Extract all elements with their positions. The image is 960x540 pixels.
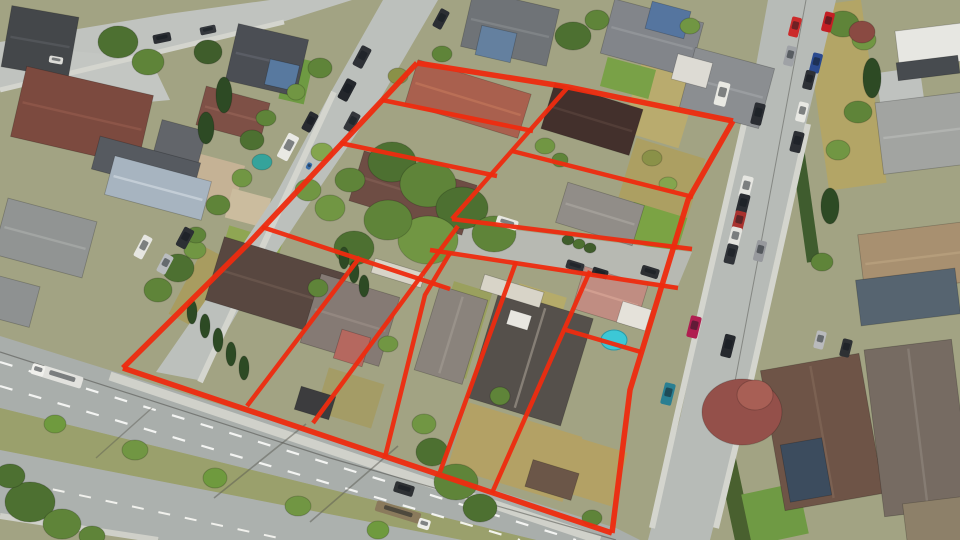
tree-25 (226, 342, 236, 366)
tree-46 (216, 77, 232, 113)
tree-52 (680, 18, 700, 34)
tree-12 (535, 138, 555, 154)
aerial-scene-svg (0, 0, 960, 540)
tree-66 (844, 101, 872, 123)
tree-68 (821, 188, 839, 224)
aerial-photo (0, 0, 960, 540)
tree-62 (367, 521, 389, 539)
tree-29 (359, 275, 369, 297)
tree-59 (122, 440, 148, 460)
tree-58 (44, 415, 66, 433)
tree-35 (412, 414, 436, 434)
tree-42 (256, 110, 276, 126)
tree-44 (132, 49, 164, 75)
tree-14 (642, 150, 662, 166)
tree-43 (98, 26, 138, 58)
tree-69 (811, 253, 833, 271)
tree-24 (213, 328, 223, 352)
tree-36 (490, 387, 510, 405)
tree-61 (285, 496, 311, 516)
tree-27 (339, 247, 349, 269)
tree-23 (200, 314, 210, 338)
tree-34 (463, 494, 497, 522)
tree-17 (573, 239, 585, 249)
tree-5 (364, 200, 412, 240)
tree-60 (203, 468, 227, 488)
tree-72 (849, 21, 875, 43)
tree-50 (555, 22, 591, 50)
tree-67 (826, 140, 850, 160)
tree-18 (584, 243, 596, 253)
tree-31 (378, 336, 398, 352)
tree-41 (240, 130, 264, 150)
tree-48 (287, 84, 305, 100)
tree-20 (144, 278, 172, 302)
tree-73 (252, 154, 272, 170)
tree-47 (198, 112, 214, 144)
tree-38 (206, 195, 230, 215)
tree-49 (308, 58, 332, 78)
tree-26 (239, 356, 249, 380)
tree-71 (737, 380, 773, 410)
tree-30 (308, 279, 328, 297)
tree-65 (863, 58, 881, 98)
tree-39 (232, 169, 252, 187)
tree-51 (585, 10, 609, 30)
tree-55 (43, 509, 81, 539)
tree-45 (194, 40, 222, 64)
tree-8 (335, 168, 365, 192)
tree-16 (562, 235, 574, 245)
tree-56 (0, 464, 25, 488)
tree-53 (432, 46, 452, 62)
tree-7 (315, 195, 345, 221)
